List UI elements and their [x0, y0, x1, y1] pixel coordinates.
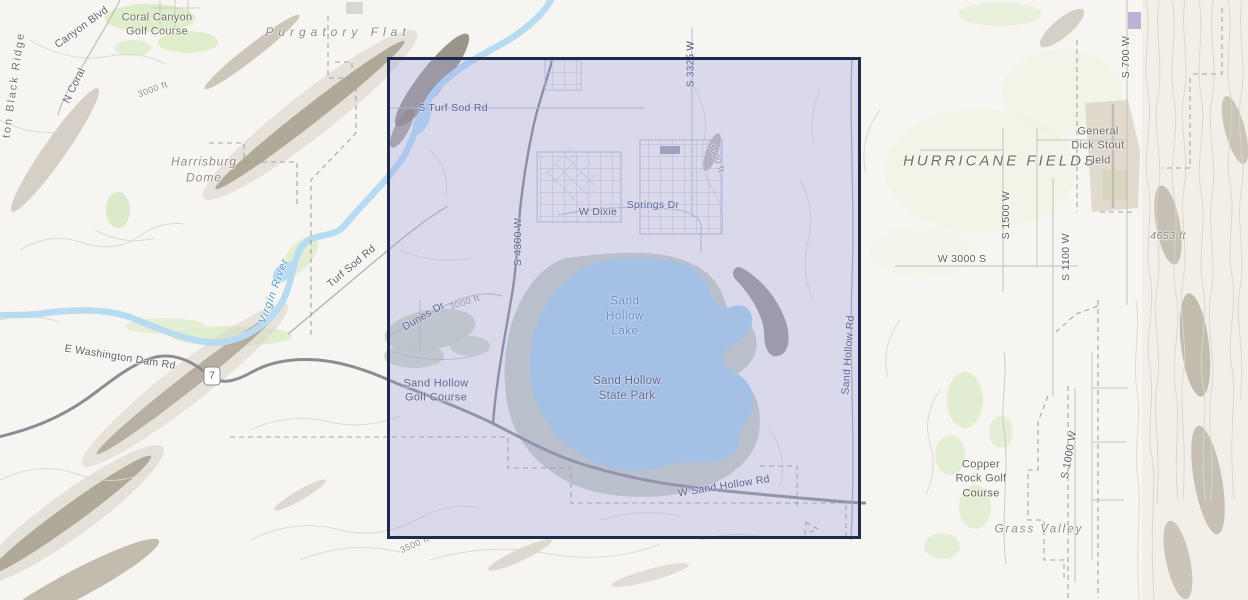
- route-7-shield: 7: [204, 367, 221, 386]
- map-canvas[interactable]: ton Black Ridge Canyon Blvd N Coral Cora…: [0, 0, 1248, 600]
- selection-extent-graphic[interactable]: [387, 57, 861, 539]
- route-7-number: 7: [209, 371, 215, 382]
- airport-area: [1085, 100, 1140, 212]
